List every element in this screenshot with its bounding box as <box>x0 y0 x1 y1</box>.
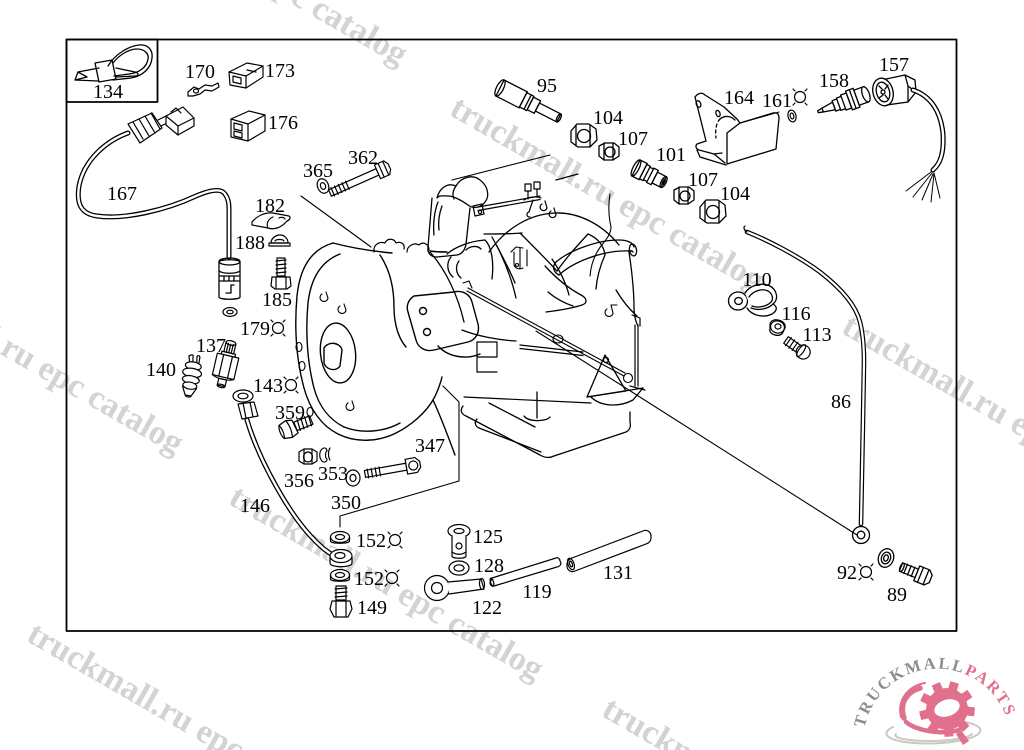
svg-text:131: 131 <box>603 562 633 584</box>
svg-text:truckmall.ru epc catalog: truckmall.ru epc catalog <box>87 0 414 73</box>
svg-text:149: 149 <box>357 597 387 619</box>
svg-text:134: 134 <box>93 81 123 103</box>
svg-text:140: 140 <box>146 359 176 381</box>
svg-text:110: 110 <box>742 269 771 291</box>
svg-text:365: 365 <box>303 160 333 182</box>
svg-text:86: 86 <box>831 391 851 413</box>
svg-text:119: 119 <box>522 581 551 603</box>
svg-text:179: 179 <box>240 318 270 340</box>
svg-text:107: 107 <box>688 169 718 191</box>
svg-text:356: 356 <box>284 470 314 492</box>
svg-text:170: 170 <box>185 61 215 83</box>
svg-text:347: 347 <box>415 435 445 457</box>
svg-text:185: 185 <box>262 289 292 311</box>
svg-text:173: 173 <box>265 60 295 82</box>
svg-text:158: 158 <box>819 70 849 92</box>
svg-text:101: 101 <box>656 144 686 166</box>
svg-text:188: 188 <box>235 232 265 254</box>
svg-text:152: 152 <box>354 568 384 590</box>
svg-text:143: 143 <box>253 375 283 397</box>
svg-text:truckmall.ru epc catalog: truckmall.ru epc catalog <box>0 252 190 462</box>
svg-text:128: 128 <box>474 555 504 577</box>
svg-text:362: 362 <box>348 147 378 169</box>
svg-text:truckmall.ru epc catalog: truckmall.ru epc catalog <box>21 615 348 750</box>
svg-text:182: 182 <box>255 195 285 217</box>
svg-text:104: 104 <box>720 183 750 205</box>
svg-text:107: 107 <box>618 128 648 150</box>
svg-text:92: 92 <box>837 562 857 584</box>
svg-text:146: 146 <box>240 495 270 517</box>
svg-text:137: 137 <box>196 335 226 357</box>
svg-text:353: 353 <box>318 463 348 485</box>
svg-text:176: 176 <box>268 112 298 134</box>
svg-text:116: 116 <box>781 303 810 325</box>
svg-text:157: 157 <box>879 54 909 76</box>
svg-text:161: 161 <box>762 90 792 112</box>
svg-text:164: 164 <box>724 87 754 109</box>
svg-text:152: 152 <box>356 530 386 552</box>
svg-text:113: 113 <box>802 324 831 346</box>
svg-text:125: 125 <box>473 526 503 548</box>
svg-text:104: 104 <box>593 107 623 129</box>
svg-text:95: 95 <box>537 75 557 97</box>
svg-text:167: 167 <box>107 183 137 205</box>
svg-text:359: 359 <box>275 402 305 424</box>
svg-text:122: 122 <box>472 597 502 619</box>
svg-text:89: 89 <box>887 584 907 606</box>
